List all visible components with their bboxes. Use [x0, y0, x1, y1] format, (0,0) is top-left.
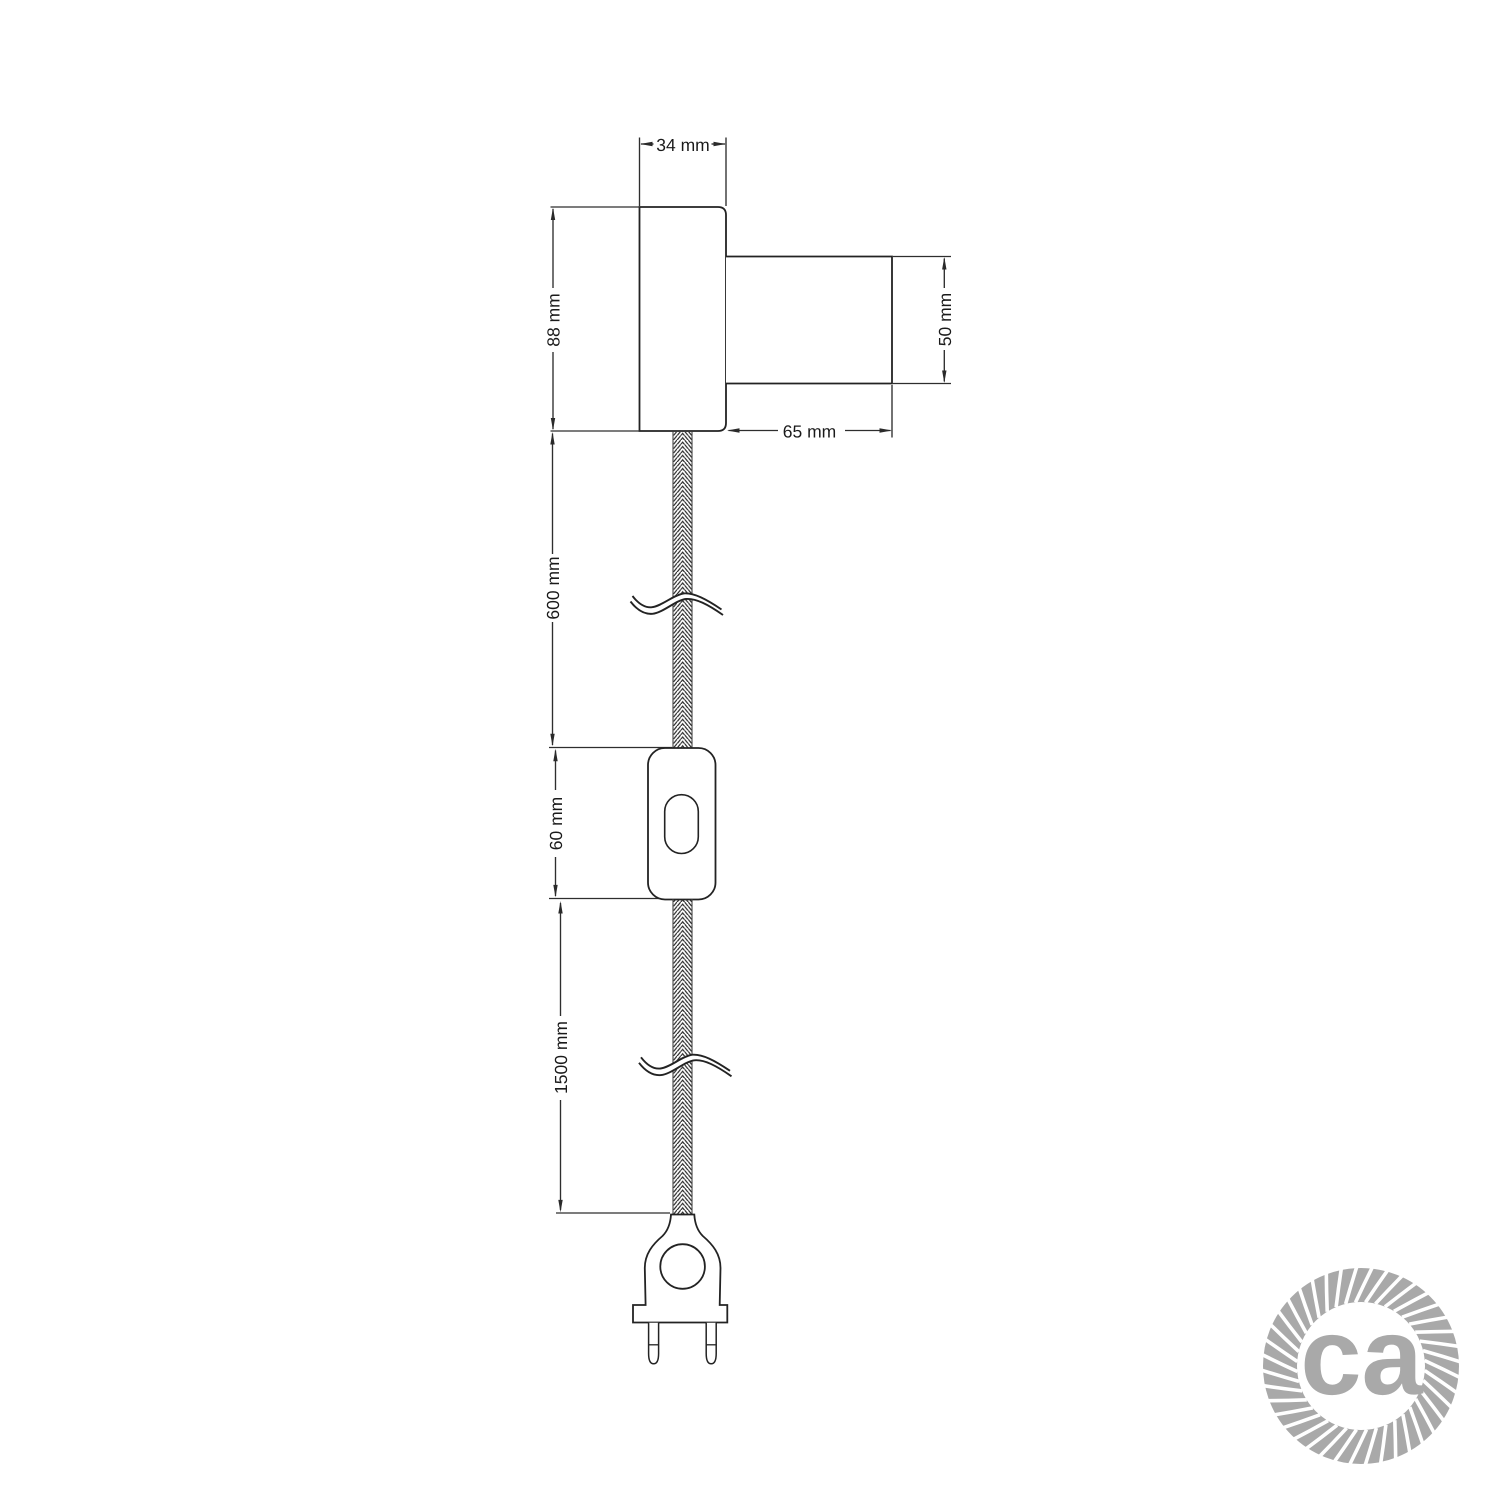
- svg-text:600 mm: 600 mm: [543, 556, 563, 619]
- svg-text:88 mm: 88 mm: [544, 293, 564, 346]
- svg-text:60 mm: 60 mm: [546, 797, 566, 850]
- svg-text:50 mm: 50 mm: [935, 293, 955, 346]
- svg-text:ca: ca: [1300, 1295, 1423, 1418]
- svg-text:1500 mm: 1500 mm: [551, 1021, 571, 1094]
- svg-text:65 mm: 65 mm: [783, 421, 836, 441]
- svg-text:34 mm: 34 mm: [656, 135, 709, 155]
